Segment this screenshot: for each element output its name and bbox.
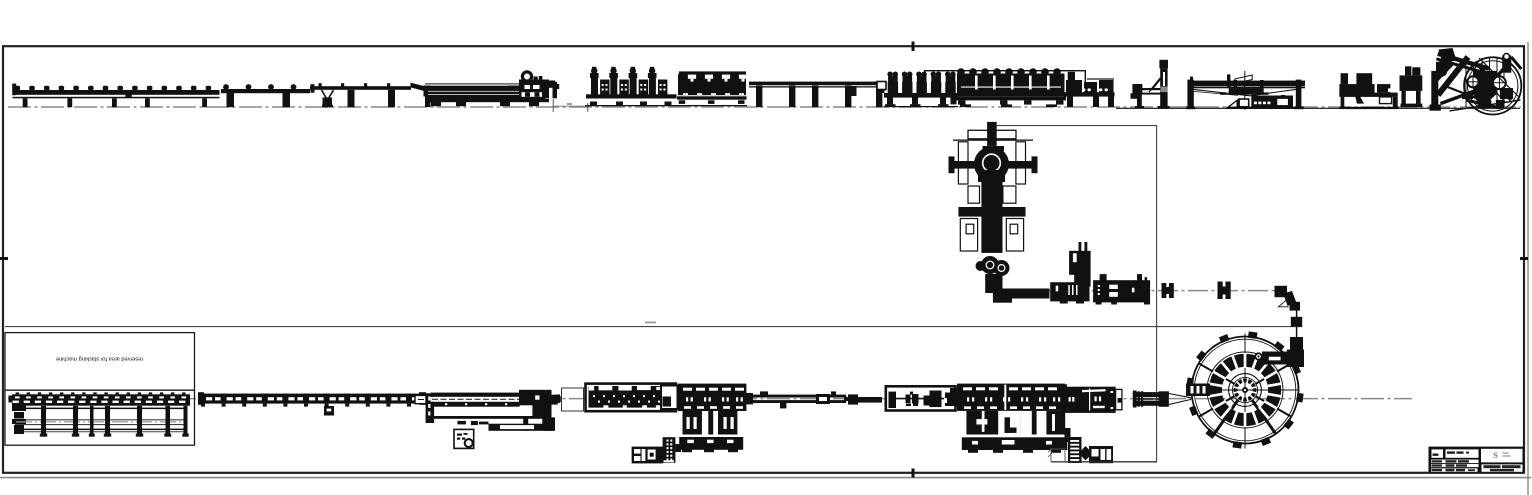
svg-text:reserved area for stacking mac: reserved area for stacking machine — [56, 356, 143, 362]
svg-text:S: S — [1493, 450, 1498, 460]
